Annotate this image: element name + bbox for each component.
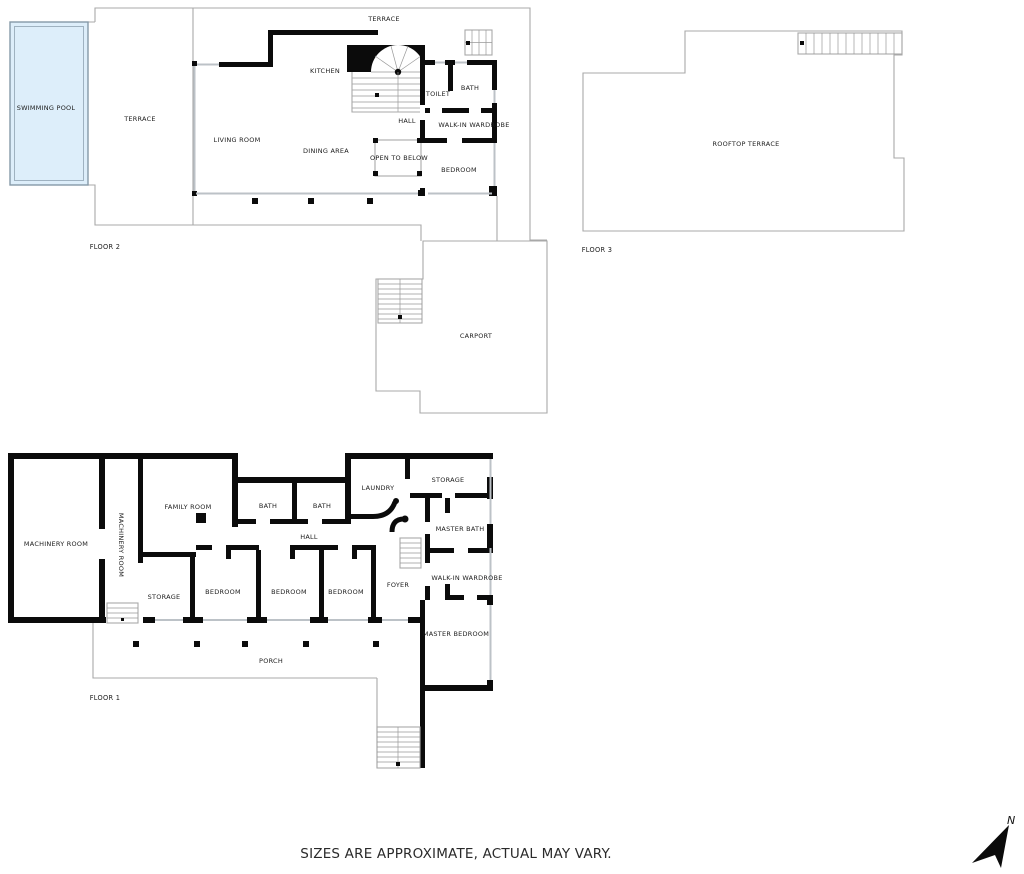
floor-2-room-label: LIVING ROOM xyxy=(214,136,261,144)
floor-1-room-label: FAMILY ROOM xyxy=(164,503,211,511)
floor1-exterior-stair xyxy=(377,727,420,768)
floor-1-label: FLOOR 1 xyxy=(90,694,121,702)
floor1-foyer-stair xyxy=(400,538,421,568)
carport-stair xyxy=(378,279,422,323)
floor2-spiral-stair xyxy=(347,45,425,112)
disclaimer-note: SIZES ARE APPROXIMATE, ACTUAL MAY VARY. xyxy=(300,846,611,862)
floor-2-room-label: TERRACE xyxy=(124,115,156,123)
floor-1-room-label: LAUNDRY xyxy=(362,484,395,492)
floor-2-room-label: DINING AREA xyxy=(303,147,349,155)
floor-1-room-label: MASTER BATH xyxy=(436,525,485,533)
floor-1-room-label: BATH xyxy=(259,502,277,510)
north-arrow-icon xyxy=(972,825,1009,868)
floor-1-room-label: STORAGE xyxy=(148,593,181,601)
floor-2-room-label: BEDROOM xyxy=(441,166,477,174)
floor-1-room-label: MACHINERY ROOM xyxy=(117,513,125,577)
floor-2-room-label: TERRACE xyxy=(368,15,400,23)
floor-2-room-label: OPEN TO BELOW xyxy=(370,154,428,162)
carport-plan xyxy=(376,241,547,413)
floor-1-room-label: WALK-IN WARDROBE xyxy=(431,574,502,582)
floorplan-drawing: N xyxy=(0,0,1024,874)
floor-1-room-label: HALL xyxy=(300,533,318,541)
floor-2-label: FLOOR 2 xyxy=(90,243,121,251)
floor-2-room-label: KITCHEN xyxy=(310,67,340,75)
floor-1-room-label: PORCH xyxy=(259,657,283,665)
floor-1-room-label: BEDROOM xyxy=(271,588,307,596)
floor-2-room-label: HALL xyxy=(398,117,416,125)
floor-1-room-label: STORAGE xyxy=(432,476,465,484)
floor2-terrace-stair xyxy=(465,30,492,55)
floor-1-room-label: BEDROOM xyxy=(328,588,364,596)
floor-1-room-label: BEDROOM xyxy=(205,588,241,596)
floor-3-room-label: ROOFTOP TERRACE xyxy=(712,140,779,148)
north-label: N xyxy=(1007,814,1015,827)
floor3-plan xyxy=(583,31,904,231)
floor3-outline xyxy=(583,31,904,231)
floor-3-label: FLOOR 3 xyxy=(582,246,613,254)
floor-2-room-label: TOILET xyxy=(426,90,450,98)
carport-outline xyxy=(376,241,547,413)
floor-1-room-label: FOYER xyxy=(387,581,409,589)
north-arrow: N xyxy=(972,814,1015,868)
floor-2-room-label: SWIMMING POOL xyxy=(17,104,76,112)
floor1-corridor-steps xyxy=(107,603,138,623)
floor-2-room-label: WALK-IN WARDROBE xyxy=(438,121,509,129)
floor-1-room-label: BATH xyxy=(313,502,331,510)
floorplan-page: N SWIMMING POOLTERRACETERRACEKITCHENLIVI… xyxy=(0,0,1024,874)
floor1-porch xyxy=(93,623,379,768)
floor-1-room-label: MASTER BEDROOM xyxy=(423,630,489,638)
floor-1-room-label: MACHINERY ROOM xyxy=(24,540,88,548)
floor3-stair xyxy=(798,33,902,54)
floor-2-room-label: BATH xyxy=(461,84,479,92)
carport-room-label: CARPORT xyxy=(460,332,492,340)
floor1-plan xyxy=(8,453,493,768)
